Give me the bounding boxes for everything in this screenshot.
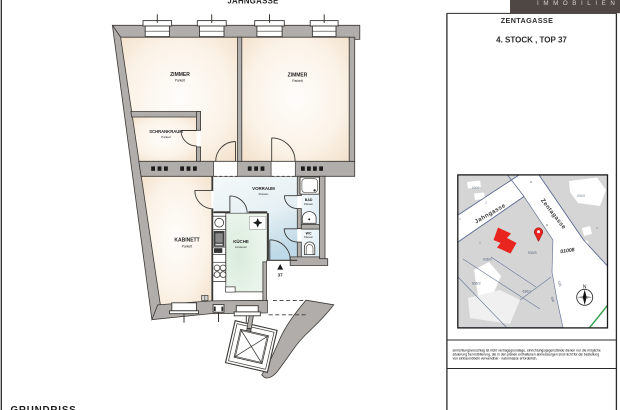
svg-text:KÜCHE: KÜCHE [233,239,249,244]
svg-text:von einbaumöbeln verwendbar -: von einbaumöbeln verwendbar - naturmasse… [453,356,538,360]
svg-text:636/3: 636/3 [483,258,492,262]
svg-text:VORRAUM: VORRAUM [252,186,275,191]
svg-text:Parkett: Parkett [161,135,171,139]
svg-text:KABINETT: KABINETT [174,238,199,244]
svg-text:8000: 8000 [472,186,479,190]
svg-text:4: 4 [459,217,461,221]
svg-text:636/1: 636/1 [523,290,532,294]
svg-text:N: N [583,284,587,290]
svg-text:Fliesen: Fliesen [304,235,313,239]
svg-text:Fliesen: Fliesen [304,202,313,206]
svg-text:37: 37 [278,273,284,278]
svg-text:GRUNDRISS: GRUNDRISS [11,405,77,410]
svg-text:ZENTAGASSE: ZENTAGASSE [501,16,554,25]
svg-text:Linoleum: Linoleum [235,245,248,249]
svg-text:2: 2 [485,201,487,205]
svg-text:JAHNGASSE: JAHNGASSE [227,0,278,5]
svg-text:636/3: 636/3 [472,282,481,286]
svg-text:4. STOCK , TOP 37: 4. STOCK , TOP 37 [496,36,567,45]
svg-text:Parkett: Parkett [292,79,303,83]
svg-text:Parkett: Parkett [175,79,186,83]
svg-text:SCHRANKRAUM: SCHRANKRAUM [149,129,183,134]
svg-text:ZIMMER: ZIMMER [170,72,190,78]
svg-text:Parkett: Parkett [182,245,193,249]
svg-text:Fliesen: Fliesen [259,192,269,196]
svg-text:ZIMMER: ZIMMER [288,73,308,79]
svg-text:933/3: 933/3 [528,251,537,255]
svg-text:IMMOBILIEN: IMMOBILIEN [537,0,619,7]
svg-text:696/8: 696/8 [577,194,585,198]
